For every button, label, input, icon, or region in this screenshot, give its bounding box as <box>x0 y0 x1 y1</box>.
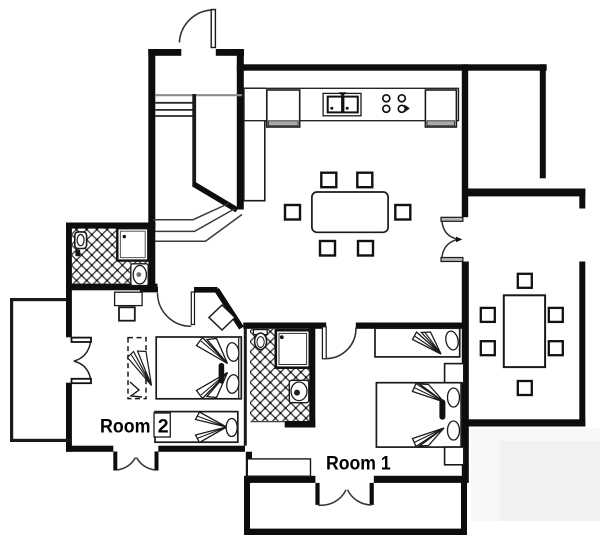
svg-text:Room 1: Room 1 <box>326 452 391 474</box>
svg-text:Room: Room <box>100 415 151 437</box>
svg-text:2: 2 <box>158 416 169 438</box>
